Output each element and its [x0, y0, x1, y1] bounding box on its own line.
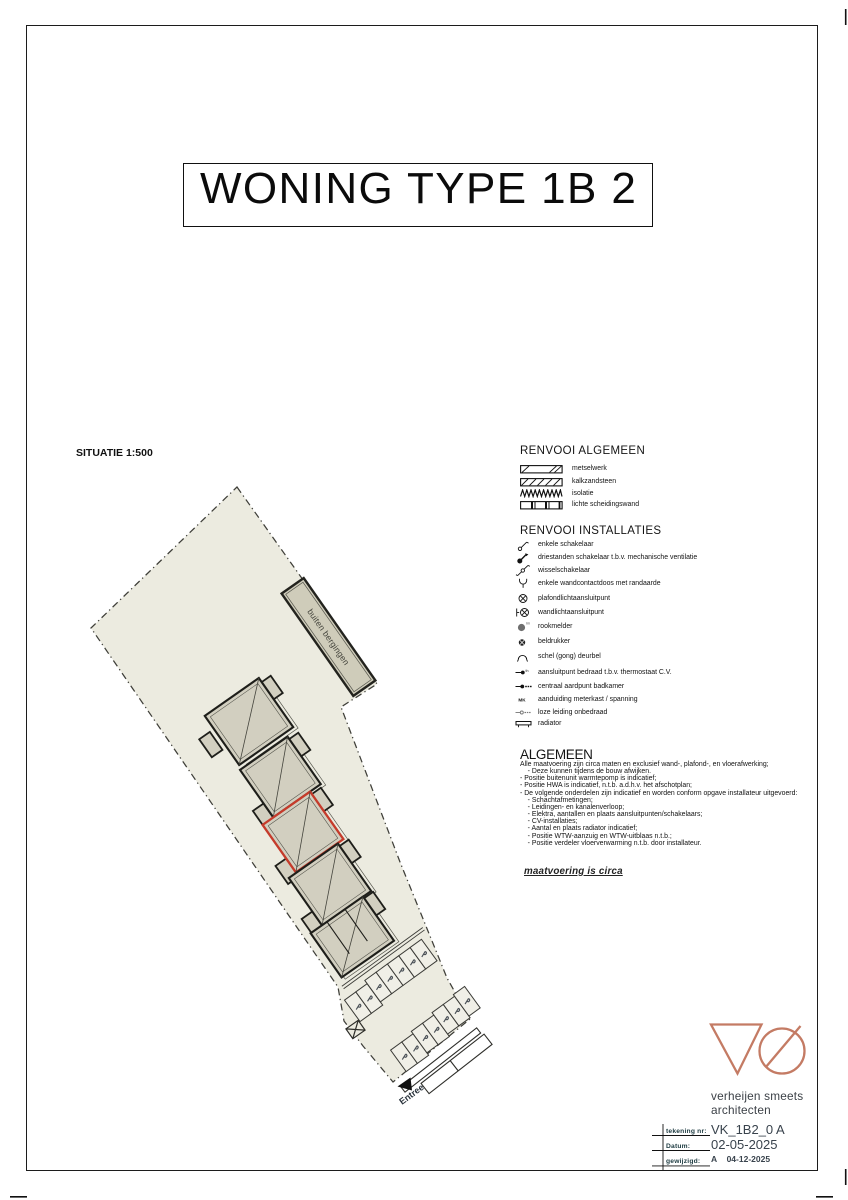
svg-text:th: th [526, 669, 529, 673]
svg-text:rm: rm [526, 622, 530, 626]
svg-text:MK: MK [518, 697, 526, 702]
